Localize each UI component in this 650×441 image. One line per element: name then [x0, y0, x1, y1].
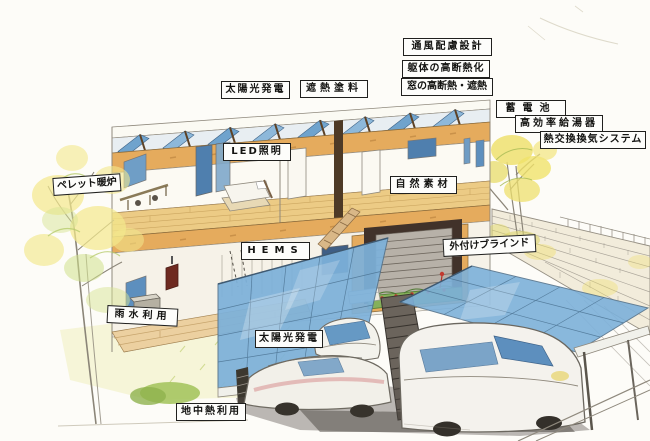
window-right-1: [464, 138, 470, 164]
eco-house-diagram: 通風配慮設計 躯体の高断熱化 窓の高断熱・遮熱 太陽光発電 遮熱塗料 蓄電池 高…: [0, 0, 650, 441]
door-right-room: [362, 150, 380, 195]
window-balcony-1: [196, 145, 212, 196]
label-heat-exchange-ventilation-system: 熱交換換気システム: [540, 131, 646, 149]
label-led-lighting: LED照明: [223, 143, 291, 161]
window-right-2: [476, 140, 484, 167]
label-geothermal-use: 地中熱利用: [176, 403, 246, 421]
label-window-insulation-shading: 窓の高断熱・遮熱: [401, 78, 493, 96]
van: [399, 323, 585, 437]
label-ventilation-design: 通風配慮設計: [403, 38, 492, 56]
label-hems: HEMS: [241, 242, 310, 260]
label-rainwater-use: 雨水利用: [107, 305, 179, 327]
label-solar-power-carport: 太陽光発電: [255, 330, 323, 348]
sketch-drawing: [0, 0, 650, 441]
label-frame-high-insulation: 躯体の高断熱化: [402, 60, 490, 78]
label-heat-shield-paint: 遮熱塗料: [300, 80, 368, 98]
column: [334, 120, 343, 227]
label-solar-power-roof: 太陽光発電: [221, 81, 290, 99]
window-art-panel: [408, 138, 436, 159]
label-natural-materials: 自然素材: [390, 176, 457, 194]
pencil-stray-lines: [528, 6, 618, 44]
